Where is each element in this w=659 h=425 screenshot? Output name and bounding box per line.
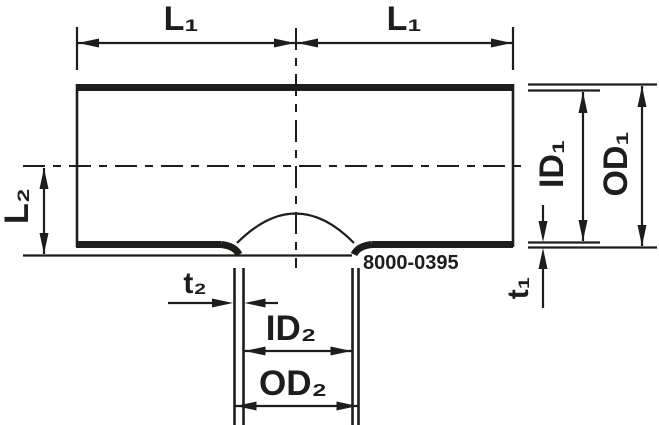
technical-drawing: L₁ L₁ L₂ ID₁ OD₁ t₁	[0, 0, 659, 425]
dim-od2: OD₂	[236, 364, 358, 411]
label-t2: t₂	[183, 267, 206, 300]
arrowhead	[331, 347, 352, 356]
label-l1-right: L₁	[387, 0, 422, 38]
arrowhead	[212, 299, 233, 308]
arrowhead	[297, 39, 318, 48]
arrowhead	[40, 168, 49, 189]
label-t1: t₁	[502, 277, 535, 299]
label-l2: L₂	[0, 188, 36, 224]
arrowhead	[638, 86, 647, 107]
dim-od1: OD₁	[597, 86, 647, 246]
arrowhead	[236, 402, 257, 411]
dim-t1: t₁	[502, 205, 548, 308]
arrowhead	[579, 220, 588, 241]
branch-fillet-left	[221, 245, 239, 255]
arrowhead	[245, 347, 266, 356]
arrowhead	[337, 402, 358, 411]
label-od2: OD₂	[259, 364, 327, 403]
arrowhead	[274, 39, 295, 48]
label-od1: OD₁	[597, 131, 635, 196]
dim-t2: t₂	[168, 267, 278, 308]
dim-l2: L₂	[0, 168, 49, 254]
arrowhead	[579, 92, 588, 113]
part-number: 8000-0395	[363, 252, 459, 274]
dim-id2: ID₂	[245, 309, 352, 356]
label-id1: ID₁	[533, 140, 571, 188]
dim-id1: ID₁	[533, 92, 588, 241]
arrowhead	[40, 233, 49, 254]
tee-body-outline	[23, 84, 513, 256]
arrowhead	[78, 39, 99, 48]
arrowhead	[638, 225, 647, 246]
label-id2: ID₂	[266, 309, 317, 348]
arrowhead	[539, 248, 548, 269]
arrowhead	[539, 221, 548, 242]
arrowhead	[245, 299, 266, 308]
centerlines	[23, 28, 528, 268]
tee-diagram-svg: L₁ L₁ L₂ ID₁ OD₁ t₁	[0, 0, 659, 425]
label-l1-left: L₁	[164, 0, 199, 38]
arrowhead	[491, 39, 512, 48]
